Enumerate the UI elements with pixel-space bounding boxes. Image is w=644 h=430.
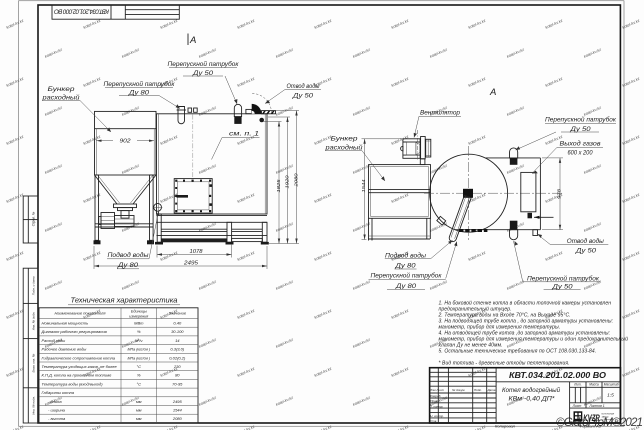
svg-text:МВт: МВт	[134, 321, 144, 326]
svg-text:Подп. и дата: Подп. и дата	[32, 276, 36, 295]
svg-text:Бункер: Бункер	[331, 137, 359, 143]
svg-text:Температура воды (вход/выход): Температура воды (вход/выход)	[42, 381, 104, 386]
svg-text:%: %	[137, 329, 141, 334]
svg-text:2080: 2080	[172, 416, 183, 421]
svg-text:1078: 1078	[190, 249, 203, 255]
svg-text:КВТ.034.201.02.000 ВО: КВТ.034.201.02.000 ВО	[54, 8, 109, 15]
svg-text:Техническая характеристика: Техническая характеристика	[71, 296, 178, 305]
svg-text:2495: 2495	[183, 260, 199, 266]
svg-text:№ докум.: № докум.	[452, 388, 465, 392]
svg-text:Перепускной патрубок: Перепускной патрубок	[168, 61, 240, 68]
svg-text:* Вид топлива - древесные отх: * Вид топлива - древесные отходы пеллети…	[439, 361, 570, 367]
svg-text:°С: °С	[137, 381, 142, 386]
svg-text:Масштаб: Масштаб	[604, 383, 619, 387]
svg-text:мм: мм	[136, 408, 142, 413]
svg-text:Гидравлическое сопротивление к: Гидравлическое сопротивление котла	[42, 355, 116, 360]
svg-text:Подвод воды: Подвод воды	[108, 253, 150, 259]
svg-text:Вентилятор: Вентилятор	[420, 111, 461, 117]
svg-text:Листов 1: Листов 1	[588, 404, 604, 408]
svg-text:Подп.: Подп.	[474, 388, 482, 392]
svg-text:Т. контр.: Т. контр.	[430, 404, 443, 408]
svg-text:Перепускной патрубок: Перепускной патрубок	[104, 81, 176, 88]
svg-text:©GidroProM®2021: ©GidroProM®2021	[556, 415, 643, 429]
svg-text:МПа (кгс/см ): МПа (кгс/см )	[128, 356, 150, 360]
svg-text:Котел водогрейный: Котел водогрейный	[502, 387, 561, 394]
svg-text:0,02(0,2): 0,02(0,2)	[169, 355, 186, 360]
svg-text:Диапазон рабочего регулировани: Диапазон рабочего регулирования	[41, 329, 108, 334]
svg-text:Разраб.: Разраб.	[430, 394, 441, 398]
svg-text:Отвод воды: Отвод воды	[567, 239, 605, 245]
svg-text:Взам. инв. №: Взам. инв. №	[32, 353, 36, 372]
svg-text:902: 902	[120, 138, 131, 144]
svg-text:мм: мм	[136, 399, 142, 404]
svg-text:1544: 1544	[361, 179, 367, 192]
svg-text:Температура уходящих газов, не: Температура уходящих газов, не более	[42, 364, 118, 369]
svg-text:Пров.: Пров.	[430, 399, 438, 403]
svg-text:2080: 2080	[293, 173, 299, 188]
svg-text:м³/ч: м³/ч	[135, 338, 142, 343]
svg-text:Ду 80: Ду 80	[394, 264, 416, 270]
svg-text:30-100: 30-100	[171, 329, 184, 334]
svg-text:Ду 50: Ду 50	[292, 94, 314, 100]
svg-text:3. На подводящей трубе котла: 3. На подводящей трубе котла , до запорн…	[439, 318, 614, 325]
svg-text:- длина: - длина	[48, 399, 62, 404]
svg-text:Копировал: Копировал	[495, 423, 516, 428]
svg-text:А: А	[189, 35, 196, 46]
svg-text:°С: °С	[137, 364, 142, 369]
svg-text:Отвод воды: Отвод воды	[287, 84, 321, 90]
svg-text:1. На боковой стенке котла в: 1. На боковой стенке котла в области топ…	[439, 300, 612, 307]
svg-text:А: А	[489, 87, 496, 98]
svg-text:манометр, прибор для измерения: манометр, прибор для измерения температу…	[439, 336, 629, 343]
svg-text:2495: 2495	[172, 399, 183, 404]
svg-text:Ду 50: Ду 50	[575, 248, 597, 254]
svg-text:- ширина: - ширина	[48, 408, 66, 413]
svg-text:Наименование показателя: Наименование показателя	[54, 311, 106, 316]
svg-text:1825: 1825	[276, 179, 282, 192]
svg-text:Лист: Лист	[572, 404, 582, 408]
svg-text:4. На отводящей трубе котла ,: 4. На отводящей трубе котла ,до запорной…	[439, 330, 611, 337]
svg-text:0,3(3,0): 0,3(3,0)	[170, 347, 184, 352]
svg-text:- высота: - высота	[48, 416, 66, 421]
svg-text:Дата: Дата	[487, 388, 496, 392]
svg-text:Масса: Масса	[589, 383, 599, 387]
svg-text:Изм Лист: Изм Лист	[430, 388, 445, 392]
svg-text:Значение: Значение	[169, 311, 187, 316]
svg-text:предохранительный штуцер.: предохранительный штуцер.	[439, 306, 512, 313]
svg-text:Перепускной патрубок: Перепускной патрубок	[545, 117, 617, 124]
svg-text:5. Остальные технические треб: 5. Остальные технические требования по О…	[439, 349, 597, 355]
svg-text:0,40: 0,40	[173, 321, 182, 326]
svg-text:КВТ.034.201.02.000 ВО: КВТ.034.201.02.000 ВО	[509, 370, 607, 380]
svg-text:Н. контр.: Н. контр.	[430, 414, 444, 418]
svg-text:1:5: 1:5	[607, 393, 614, 399]
svg-text:Габариты котла: Габариты котла	[42, 390, 75, 395]
svg-text:1920: 1920	[284, 175, 290, 188]
svg-text:80: 80	[175, 373, 180, 378]
svg-text:Инв. № дубл.: Инв. № дубл.	[32, 312, 36, 331]
svg-text:Единицы: Единицы	[131, 310, 147, 314]
svg-text:Утв.: Утв.	[430, 419, 437, 423]
svg-text:измерения: измерения	[129, 314, 148, 318]
svg-text:см. п. 1: см. п. 1	[229, 131, 260, 138]
svg-text:230: 230	[173, 364, 181, 369]
svg-text:Инв. № подл.: Инв. № подл.	[32, 396, 36, 415]
svg-text:Ду 80: Ду 80	[117, 263, 139, 269]
svg-text:%: %	[137, 373, 141, 378]
svg-text:Лит.: Лит.	[573, 383, 582, 387]
svg-text:Номинальная мощность: Номинальная мощность	[42, 321, 89, 326]
svg-text:Рабочее давление воды: Рабочее давление воды	[42, 347, 87, 352]
svg-text:Бункер: Бункер	[48, 87, 76, 93]
svg-text:Справ. №: Справ. №	[32, 211, 36, 226]
svg-text:978: 978	[557, 189, 563, 199]
svg-text:70-95: 70-95	[172, 381, 183, 386]
svg-text:МПа (кгс/см ): МПа (кгс/см )	[128, 348, 150, 352]
svg-text:К.П.Д. котла на проектном топл: К.П.Д. котла на проектном топливе	[42, 373, 113, 378]
svg-text:Перепускной патрубок: Перепускной патрубок	[371, 273, 443, 280]
svg-text:Перепускной патрубок: Перепускной патрубок	[527, 276, 600, 283]
svg-text:КВм -0,40 ДП*: КВм -0,40 ДП*	[509, 396, 556, 403]
svg-text:14: 14	[175, 338, 180, 343]
svg-text:Выход газов: Выход газов	[560, 142, 601, 148]
svg-text:мм: мм	[136, 416, 142, 421]
svg-text:Расход воды: Расход воды	[42, 338, 66, 343]
svg-text:1544: 1544	[173, 408, 183, 413]
svg-text:600 х 200: 600 х 200	[568, 151, 594, 157]
